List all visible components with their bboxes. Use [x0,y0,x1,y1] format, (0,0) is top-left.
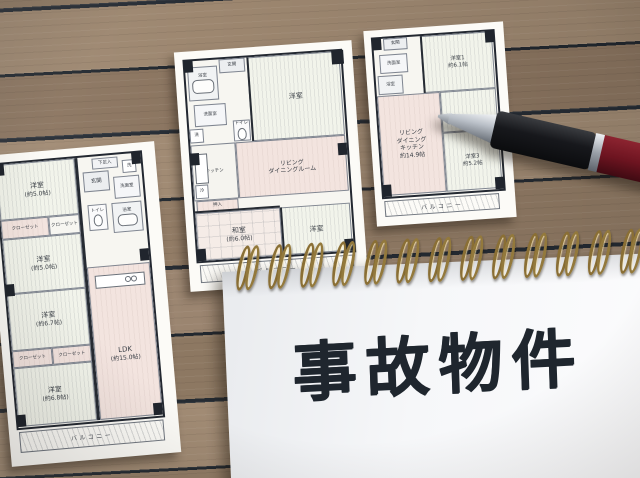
room-label: クローゼット [19,354,46,362]
room-label: 洗面室 [120,183,134,190]
stove-burner-icon [124,276,131,283]
spiral-coil [365,239,389,290]
toilet-icon [93,214,103,227]
toilet-icon [237,127,247,140]
pillar [16,414,26,427]
pillar [5,284,15,297]
spiral-coil [461,235,485,286]
pillar [382,185,392,198]
photo-scene: 洋室 (約5.0帖) クローゼット クローゼット 洋室 (約5.0帖) 洋室 (… [0,0,640,478]
room-label: 玄関 [227,62,236,68]
room-size: (約6.0帖) [226,234,253,243]
bathtub-icon [192,79,215,95]
room-label: 冷 [200,189,205,195]
room-entrance: 玄関 [218,58,245,74]
room-bath: 浴室 [111,201,144,234]
pillar [139,248,149,261]
room-bedroom4: 洋室 (約6.8帖) [13,361,97,427]
room-shoe-box: 下足入 [91,156,118,169]
pillar [372,38,382,51]
room-size: (約6.7帖) [36,319,63,329]
pillar [153,402,163,415]
spiral-coil [397,237,421,288]
room-label: 浴室 [386,82,395,88]
room-label: 下足入 [98,160,112,167]
room-label: 洋室 [288,91,303,101]
spiral-coil [589,229,613,280]
pillar [338,143,348,156]
room-entrance: 玄関 [83,170,111,192]
spiral-notebook: 事故物件 [222,251,640,478]
room-label: 玄関 [91,177,103,185]
handwritten-text: 事故物件 [291,307,586,414]
room-entrance: 玄関 [383,37,408,51]
room-size: (約5.0帖) [24,189,51,199]
room-label: 玄関 [391,41,400,47]
room-toilet: トイレ [87,204,108,232]
room-label: ダイニングルーム [268,165,316,176]
room-washroom: 洗面室 [113,175,141,199]
spiral-coil [429,236,453,287]
room-label: 浴室 [198,73,207,79]
spiral-coil [620,228,640,279]
room-ldk: LDK (約15.0帖) [86,262,162,420]
spiral-coil [269,243,293,294]
room-size: (約5.0帖) [31,263,58,273]
room-washroom: 洗面室 [379,53,408,74]
room-label: クローゼット [51,221,78,229]
room-bedroom2: 洋室 (約5.0帖) [2,233,85,295]
spiral-coil [557,230,581,281]
room-label: 洋室 [309,224,324,234]
floor-plan-left: 洋室 (約5.0帖) クローゼット クローゼット 洋室 (約5.0帖) 洋室 (… [0,141,181,467]
room-label: 押入 [213,203,222,209]
room-label: 洗面室 [387,60,401,67]
spiral-coil [237,244,261,295]
room-label: クローゼット [58,351,85,359]
spiral-coil [525,232,549,283]
room-label: 浴室 [122,207,131,213]
room-bedroom3: 洋室 (約6.7帖) [7,288,91,352]
stove-burner-icon [130,275,137,282]
pillar [197,249,207,262]
room-ldk: リビング ダイニング キッチン 約14.9帖 [377,92,447,196]
room-label: 洗 [127,163,132,169]
room-laundry: 洗 [189,129,204,144]
pillar [190,153,200,166]
room-size: (約6.8帖) [42,394,69,404]
room-bedroom-top: 洋室 [246,51,345,141]
pillar [131,151,141,164]
spiral-coil [493,233,517,284]
pillar [331,50,344,65]
pillar [485,30,495,43]
pillar [495,177,505,190]
room-size: 約5.2帖 [463,160,483,168]
room-size: 約6.1帖 [448,61,468,69]
kitchen-counter-icon [94,272,145,289]
room-label: 洗面室 [203,112,217,119]
bathtub-icon [117,213,138,227]
room-washroom: 洗面室 [194,103,227,127]
room-size: 約14.9帖 [400,151,426,160]
room-fridge: 冷 [195,184,209,199]
balcony-label: バルコニー [421,199,464,211]
room-label: トイレ [235,121,249,128]
room-bedroom1: 洋室1 約6.1帖 [420,31,496,93]
room-label: トイレ [90,207,104,214]
room-living-dining: リビング ダイニングルーム [235,135,349,199]
room-bath: 浴室 [378,74,404,95]
pillar [183,60,193,73]
room-size: (約15.0帖) [111,353,142,363]
spiral-coil [301,242,325,293]
room-label: 洗 [194,133,199,139]
room-bedroom1: 洋室 (約5.0帖) [0,158,79,221]
room-label: クローゼット [11,224,38,232]
room-toilet: トイレ [233,119,251,141]
spiral-coil [333,240,357,291]
balcony-label: バルコニー [71,430,114,443]
